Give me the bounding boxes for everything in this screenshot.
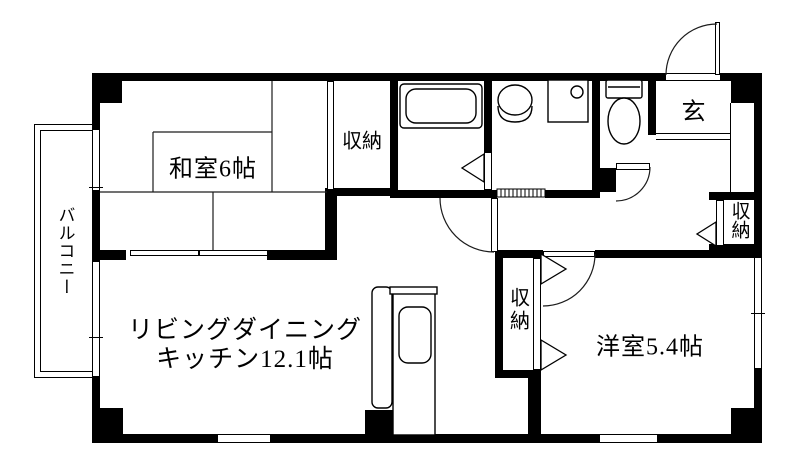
bath-folding-door-icon	[462, 154, 484, 182]
bathtub-icon	[400, 84, 482, 128]
washroom-sliding-door	[497, 189, 545, 197]
ldk-label-line2: キッチン12.1帖	[128, 345, 362, 374]
closet-mid-folding-door-icon	[541, 254, 566, 284]
entry-door-swing-arc	[666, 24, 717, 75]
washitsu-label: 和室6帖	[169, 149, 257, 184]
toilet-door-swing-arc	[616, 167, 650, 201]
ldk-label: リビングダイニング キッチン12.1帖	[128, 316, 362, 374]
fixture-layer	[0, 0, 800, 462]
toilet-icon	[606, 80, 642, 144]
closet-mid-label: 収納	[504, 287, 533, 333]
closet-mid-folding-door-icon	[541, 340, 566, 370]
yoshitsu-label: 洋室5.4帖	[596, 327, 704, 362]
balcony-label: バルコニー	[53, 206, 78, 296]
floor-plan: 和室6帖 収納 玄 収納 収納 洋室5.4帖 リビングダイニング キッチン12.…	[0, 0, 800, 462]
closet-hall-folding-door-icon	[697, 222, 716, 246]
washer-pan-icon	[548, 80, 588, 122]
closet-hall-label: 収納	[726, 201, 753, 239]
kitchen-counter-icon	[372, 287, 437, 435]
genkan-label: 玄	[682, 92, 707, 127]
ldk-label-line1: リビングダイニング	[128, 316, 362, 345]
washbasin-icon	[498, 85, 532, 122]
closet-top-label: 収納	[342, 125, 382, 154]
ldk-door-swing-arc	[440, 198, 494, 252]
